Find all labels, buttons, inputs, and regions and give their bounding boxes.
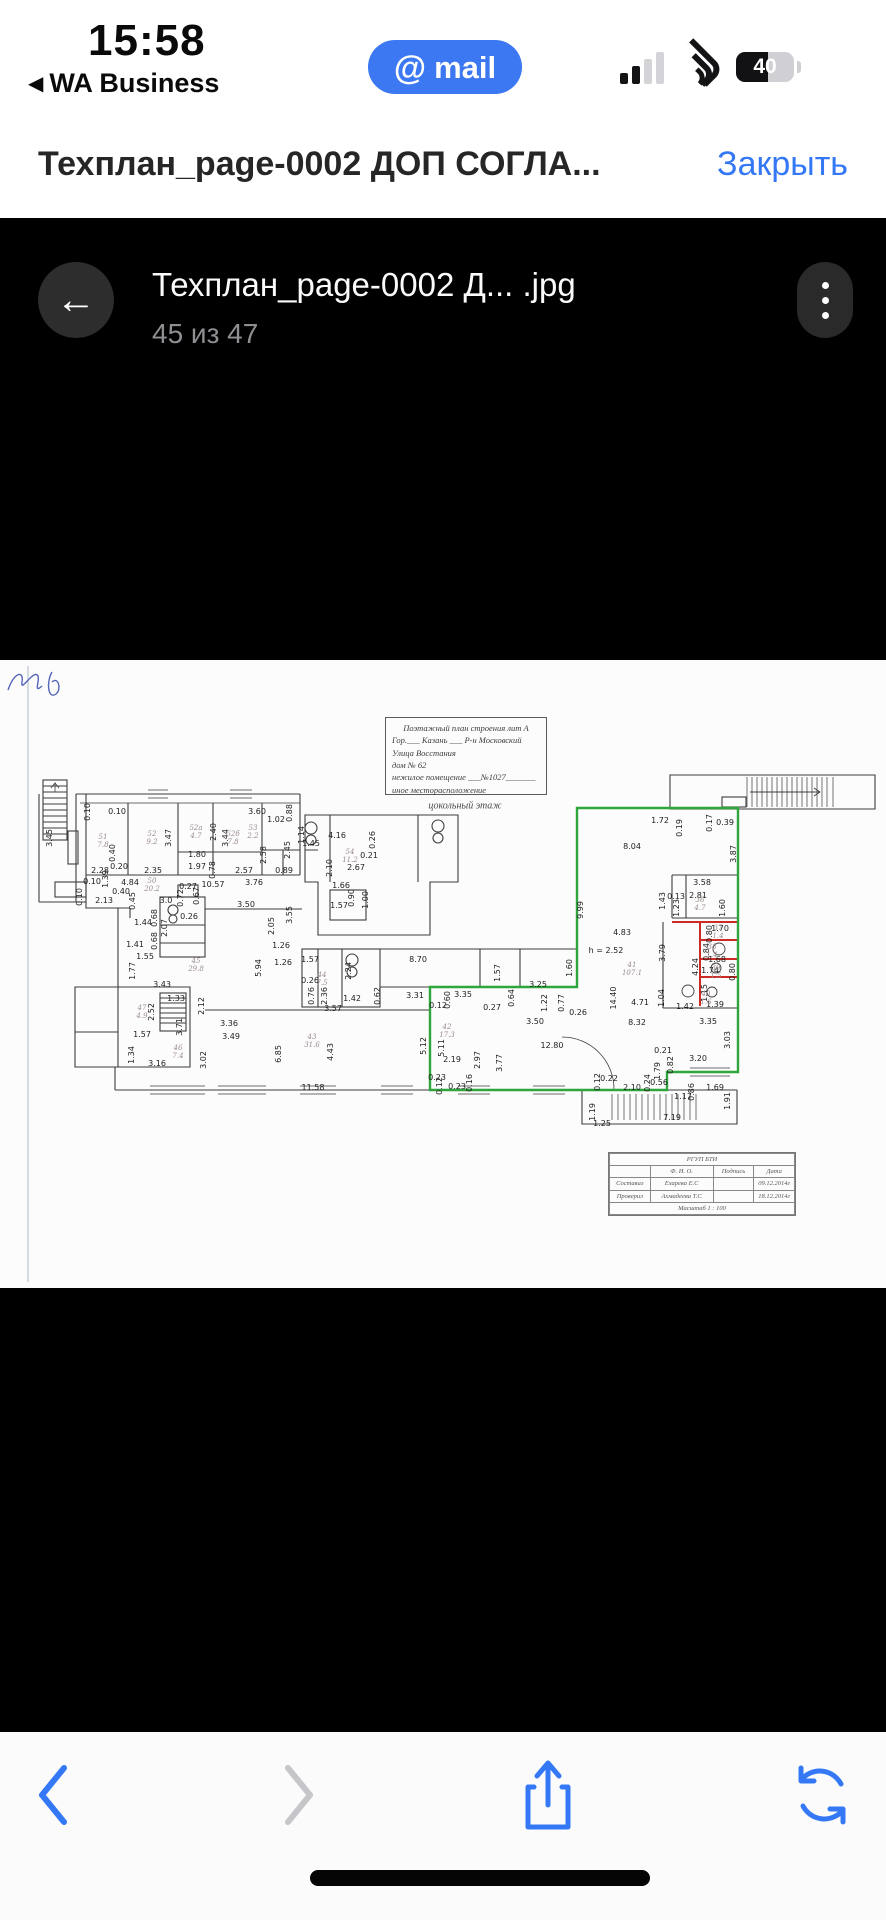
dimension-label: 1.97 — [188, 863, 206, 871]
dimension-label: 11.58 — [302, 1084, 325, 1092]
dimension-label: 0.19 — [676, 819, 684, 837]
battery-nub — [797, 61, 801, 73]
dimension-label: 0.16 — [466, 1074, 474, 1092]
dimension-label: 2.57 — [235, 867, 253, 875]
dimension-label: 1.57 — [133, 1031, 151, 1039]
dimension-label: 3.36 — [220, 1020, 238, 1028]
dimension-label: 1.26 — [274, 959, 292, 967]
dimension-label: 3.58 — [693, 879, 711, 887]
viewer-more-menu-button[interactable] — [797, 262, 853, 338]
dimension-label: 1.02 — [267, 816, 285, 824]
dimension-label: 1.43 — [659, 892, 667, 910]
room-number-label: 41 107.1 — [622, 961, 642, 977]
dimension-label: 3.55 — [286, 906, 294, 924]
dimension-label: 1.45 — [302, 840, 320, 848]
dimension-label: 0.23 — [448, 1083, 466, 1091]
dimension-label: 0.76 — [308, 987, 316, 1005]
dimension-label: 1.34 — [128, 1046, 136, 1064]
reload-icon — [791, 1762, 853, 1828]
plan-title-block: Поэтажный план строения лит А Гор.___ Ка… — [385, 717, 547, 795]
dimension-label: 0.10 — [108, 808, 126, 816]
dimension-label: 1.33 — [167, 995, 185, 1003]
dimension-label: 1.41 — [126, 941, 144, 949]
dimension-label: 1.26 — [272, 942, 290, 950]
dimension-label: 1.69 — [706, 1084, 724, 1092]
dimension-label: 0.12 — [429, 1002, 447, 1010]
dimension-label: 2.05 — [268, 917, 276, 935]
dimension-label: 1.42 — [676, 1003, 694, 1011]
dimension-label: 2.12 — [198, 997, 206, 1015]
dimension-label: 0.88 — [286, 804, 294, 822]
room-number-label: 42 17.3 — [439, 1023, 455, 1039]
dimension-label: 4.24 — [692, 958, 700, 976]
room-number-label: 39 1.5 — [710, 964, 721, 980]
dimension-label: 2.24 — [345, 962, 353, 980]
dimension-label: 12.80 — [541, 1042, 564, 1050]
dimension-label: 4.43 — [327, 1043, 335, 1061]
dimension-label: 1.77 — [129, 962, 137, 980]
dimension-label: 3.35 — [454, 991, 472, 999]
dimension-label: 2.10 — [326, 859, 334, 877]
dimension-label: 8.32 — [628, 1019, 646, 1027]
dimension-label: 0.40 — [109, 844, 117, 862]
dimension-label: 14.40 — [610, 987, 618, 1010]
status-icons: 40 — [620, 42, 860, 92]
dimension-label: 1.22 — [541, 994, 549, 1012]
status-bar: 15:58 ◀ WA Business @ mail 40 — [0, 0, 886, 110]
dimension-label: 1.00 — [362, 891, 370, 909]
dimension-label: 0.86 — [688, 1083, 696, 1101]
dimension-label: 0.56 — [650, 1079, 668, 1087]
dimension-label: 3.79 — [659, 944, 667, 962]
share-icon — [520, 1757, 576, 1833]
dimension-label: 4.71 — [631, 999, 649, 1007]
back-chevron-icon — [32, 1760, 76, 1830]
dimension-label: 3.31 — [406, 992, 424, 1000]
dimension-label: 3.03 — [724, 1031, 732, 1049]
dimension-label: 0.45 — [129, 892, 137, 910]
dimension-label: 0.82 — [667, 1056, 675, 1074]
dimension-label: 3.77 — [496, 1054, 504, 1072]
clock: 15:58 — [88, 16, 206, 66]
dimension-label: 3.57 — [324, 1005, 342, 1013]
dot — [822, 312, 829, 319]
forward-chevron-icon — [276, 1760, 320, 1830]
close-button[interactable]: Закрыть — [717, 145, 848, 184]
dimension-label: 0.89 — [275, 867, 293, 875]
dimension-label: 0.67 — [193, 887, 201, 905]
dimension-label: h = 2.52 — [589, 947, 624, 955]
dimension-label: 2.07 — [161, 919, 169, 937]
dimension-label: 0.72 — [177, 889, 185, 907]
dimension-label: 2.58 — [260, 846, 268, 864]
mail-app-pill[interactable]: @ mail — [368, 40, 522, 94]
dimension-label: 3.16 — [148, 1060, 166, 1068]
dot — [822, 297, 829, 304]
dimension-label: 1.39 — [102, 870, 110, 888]
dimension-label: 3.25 — [529, 981, 547, 989]
room-number-label: 43 31.6 — [304, 1033, 320, 1049]
dimension-label: 2.45 — [284, 841, 292, 859]
dimension-label: 0.78 — [209, 861, 217, 879]
battery-percent: 40 — [736, 52, 794, 82]
room-number-label: 46 7.4 — [172, 1044, 183, 1060]
dimension-label: 0.27 — [483, 1004, 501, 1012]
dimension-label: 3.71 — [176, 1018, 184, 1036]
dimension-label: 3.43 — [153, 981, 171, 989]
dimension-label: 1.04 — [658, 989, 666, 1007]
room-number-label: 47 4.9 — [136, 1004, 147, 1020]
home-indicator[interactable] — [310, 1870, 650, 1886]
room-number-label: 52б 7.8 — [226, 830, 239, 846]
dimension-label: 6.85 — [275, 1045, 283, 1063]
dimension-label: 5.94 — [255, 959, 263, 977]
room-number-label: 53 2.2 — [247, 824, 258, 840]
room-number-label: 52 9.2 — [146, 830, 157, 846]
dimension-label: 3.0 — [160, 897, 173, 905]
room-number-label: 52а 4.7 — [189, 824, 202, 840]
dimension-label: 2.10 — [623, 1084, 641, 1092]
back-triangle-icon: ◀ — [28, 71, 43, 96]
dimension-label: 0.10 — [76, 888, 84, 906]
dimension-label: 3.49 — [222, 1033, 240, 1041]
wifi-icon — [678, 50, 722, 84]
dimension-label: 0.17 — [706, 814, 714, 832]
dimension-label: 2.67 — [347, 864, 365, 872]
dimension-label: 4.84 — [121, 879, 139, 887]
dimension-label: 2.35 — [144, 867, 162, 875]
dimension-label: 8.04 — [623, 843, 641, 851]
viewer-page-indicator: 45 из 47 — [152, 318, 258, 350]
cellular-signal-icon — [620, 50, 664, 84]
room-number-label: 45 29.8 — [188, 957, 204, 973]
dimension-label: 10.57 — [202, 881, 225, 889]
dot — [822, 282, 829, 289]
room-number-label: 50 20.2 — [144, 877, 160, 893]
room-number-label: 38 1.4 — [706, 943, 717, 959]
dimension-label: 2.36 — [321, 987, 329, 1005]
dimension-label: 0.21 — [360, 852, 378, 860]
dimension-label: 0.62 — [374, 987, 382, 1005]
dimension-label: 1.80 — [188, 851, 206, 859]
attachment-header: Техплан_page-0002 ДОП СОГЛА... Закрыть — [0, 110, 886, 218]
dimension-label: 1.57 — [494, 964, 502, 982]
room-number-label: 40 1.6 — [700, 990, 711, 1006]
dimension-label: 3.02 — [200, 1051, 208, 1069]
room-number-label: 37 1.4 — [712, 924, 723, 940]
floor-label: цокольный этаж — [428, 801, 501, 812]
dimension-label: 3.76 — [245, 879, 263, 887]
dimension-label: 2.52 — [148, 1003, 156, 1021]
back-button[interactable] — [14, 1750, 94, 1840]
dimension-label: 3.45 — [46, 829, 54, 847]
return-to-app-link[interactable]: ◀ WA Business — [28, 68, 219, 99]
dimension-label: 1.72 — [651, 817, 669, 825]
room-number-label: 54 11.2 — [342, 848, 358, 864]
dimension-label: 2.40 — [210, 823, 218, 841]
room-number-label: 36 4.7 — [694, 896, 705, 912]
attachment-title: Техплан_page-0002 ДОП СОГЛА... — [38, 145, 601, 184]
dimension-label: 2.19 — [443, 1056, 461, 1064]
dimension-label: 9.99 — [577, 901, 585, 919]
dimension-label: 3.50 — [526, 1018, 544, 1026]
dimension-label: 0.21 — [654, 1047, 672, 1055]
dimension-label: 1.60 — [719, 899, 727, 917]
dimension-label: 1.25 — [593, 1120, 611, 1128]
dimension-label: 3.47 — [165, 829, 173, 847]
forward-button[interactable] — [258, 1750, 338, 1840]
dimension-label: 3.87 — [730, 845, 738, 863]
dimension-label: 0.90 — [348, 889, 356, 907]
dimension-label: 4.16 — [328, 832, 346, 840]
dimension-label: 0.10 — [84, 803, 92, 821]
dimension-label: 1.57 — [330, 902, 348, 910]
dimension-label: 4.83 — [613, 929, 631, 937]
viewer-back-button[interactable]: ← — [38, 262, 114, 338]
dimension-label: 1.60 — [566, 959, 574, 977]
dimension-label: 2.13 — [95, 897, 113, 905]
dimension-label: 0.26 — [180, 913, 198, 921]
room-number-label: 44 7.5 — [316, 971, 327, 987]
share-button[interactable] — [508, 1750, 588, 1840]
dimension-label: 8.70 — [409, 956, 427, 964]
back-arrow-icon: ← — [56, 278, 96, 323]
dimension-label: 1.91 — [724, 1092, 732, 1110]
mail-logo-at-icon: @ — [394, 51, 426, 84]
dimension-label: 0.12 — [436, 1077, 444, 1095]
dimension-label: 1.42 — [343, 995, 361, 1003]
dimension-label: 1.55 — [136, 953, 154, 961]
dimension-label: 0.20 — [110, 863, 128, 871]
reload-button[interactable] — [782, 1750, 862, 1840]
dimension-label: 2.97 — [474, 1051, 482, 1069]
stamp-table: РГУП БТИ Ф. И. О.ПодписьДата СоставилЕха… — [608, 1152, 796, 1216]
dimension-label: 1.57 — [301, 956, 319, 964]
dimension-label: 3.50 — [237, 901, 255, 909]
dimension-label: 0.39 — [716, 819, 734, 827]
dimension-label: 0.68 — [151, 932, 159, 950]
dimension-label: 0.26 — [369, 831, 377, 849]
dimension-label: 3.20 — [689, 1055, 707, 1063]
dimension-label: 0.22 — [600, 1075, 618, 1083]
dimension-label: 0.26 — [569, 1009, 587, 1017]
dimension-label: 3.60 — [248, 808, 266, 816]
battery-icon: 40 — [736, 52, 794, 82]
viewer-background-bottom — [0, 1288, 886, 1732]
viewer-filename: Техплан_page-0002 Д... .jpg — [152, 266, 576, 304]
signature-scribble — [0, 660, 80, 706]
dimension-label: 3.35 — [699, 1018, 717, 1026]
dimension-label: 0.68 — [151, 909, 159, 927]
dimension-label: 0.77 — [558, 994, 566, 1012]
dimension-label: 0.64 — [508, 989, 516, 1007]
dimension-label: 7.19 — [663, 1114, 681, 1122]
browser-toolbar — [0, 1732, 886, 1920]
room-number-label: 51 7.8 — [97, 833, 108, 849]
dimension-label: 0.10 — [83, 878, 101, 886]
floorplan-image[interactable]: Поэтажный план строения лит А Гор.___ Ка… — [0, 660, 886, 1288]
dimension-label: 1.23 — [673, 899, 681, 917]
dimension-label: 0.80 — [729, 963, 737, 981]
dimension-label: 5.12 — [420, 1037, 428, 1055]
